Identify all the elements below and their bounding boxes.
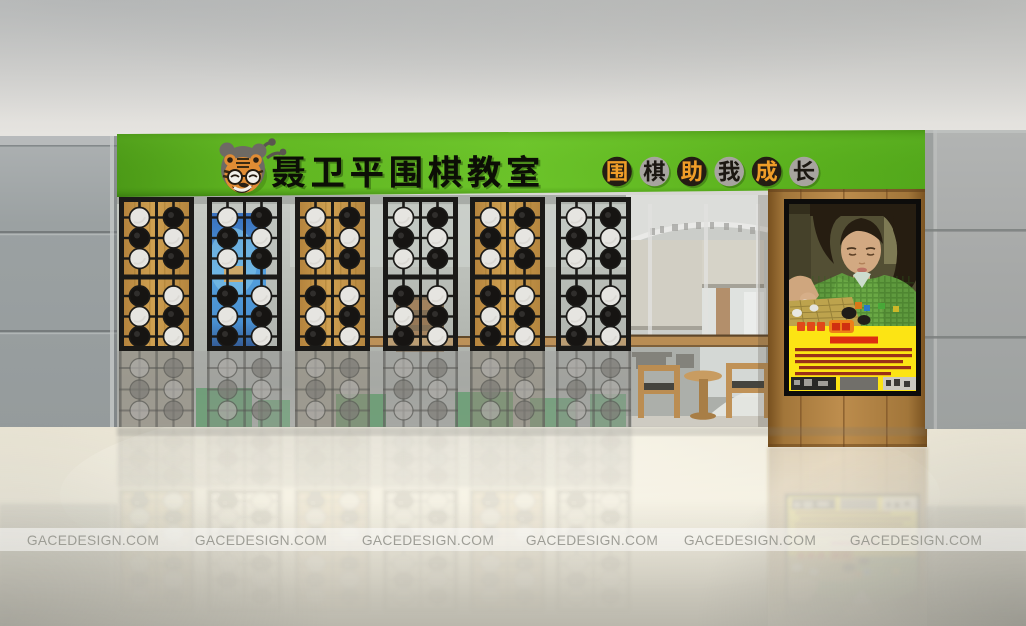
svg-text:GACEDESIGN.COM: GACEDESIGN.COM [362, 533, 494, 548]
svg-text:GACEDESIGN.COM: GACEDESIGN.COM [27, 533, 159, 548]
svg-text:GACEDESIGN.COM: GACEDESIGN.COM [684, 533, 816, 548]
svg-text:GACEDESIGN.COM: GACEDESIGN.COM [526, 533, 658, 548]
svg-text:GACEDESIGN.COM: GACEDESIGN.COM [850, 533, 982, 548]
svg-text:GACEDESIGN.COM: GACEDESIGN.COM [195, 533, 327, 548]
